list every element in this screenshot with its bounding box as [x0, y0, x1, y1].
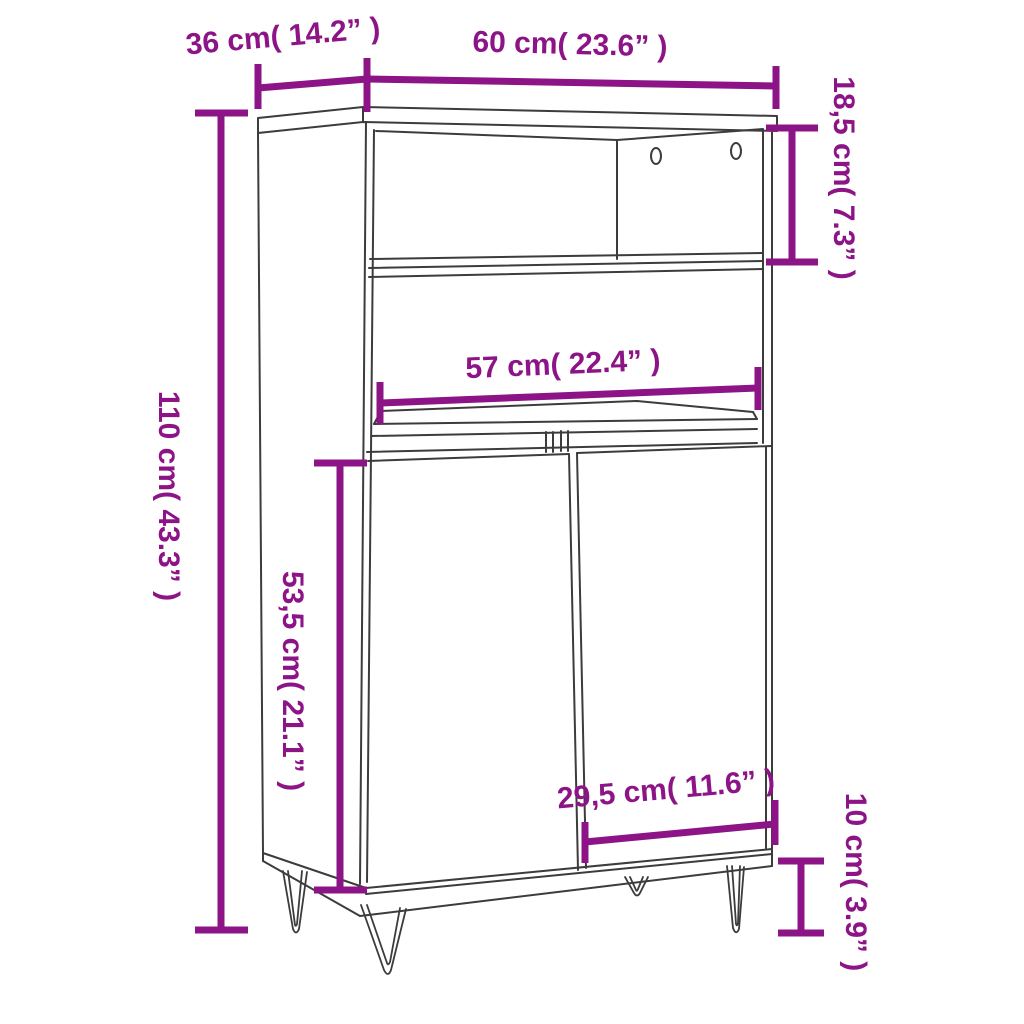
product-dimension-diagram: 36 cm( 14.2” ) 60 cm( 23.6” ) 18,5 cm( 7… [0, 0, 1024, 1024]
dimension-label-leg-height: 10 cm( 3.9” ) [837, 732, 873, 1024]
counter-front-bottom-edge [371, 429, 757, 436]
counter-right-edge [753, 412, 757, 419]
cabinet-line-drawing [258, 107, 777, 974]
frieze-divider [546, 431, 568, 452]
shelf-back-edge [370, 253, 763, 259]
shelf-front-top-edge [369, 261, 763, 268]
left-panel-front-inner-edge [367, 130, 374, 882]
dimension-label-door-section-height: 53,5 cm( 21.1” ) [274, 531, 310, 831]
dimension-label-total-height: 110 cm( 43.3” ) [150, 346, 186, 646]
hanging-hole-right [731, 143, 741, 159]
left-door-top-edge [368, 454, 569, 461]
compartment-ceiling-edge [376, 131, 617, 140]
cabinet-top-board [258, 107, 777, 133]
left-panel-outer-edge [258, 133, 263, 853]
back-rail-top-edge [617, 129, 763, 140]
dim-top-depth-line [258, 58, 367, 112]
door-bottom-edge [366, 849, 772, 888]
shelf-front-bottom-edge [369, 269, 763, 277]
left-panel-front-edge [360, 122, 366, 884]
hairpin-leg-back-right [625, 877, 648, 896]
dim-leg-height-line [778, 861, 824, 933]
dim-total-height-line [195, 113, 248, 930]
dim-door-section-height-line [314, 463, 367, 890]
dimension-label-upper-compartment-height: 18,5 cm( 7.3” ) [825, 28, 861, 328]
hairpin-leg-front-right [727, 866, 744, 932]
counter-front-top-edge [374, 419, 757, 424]
dim-upper-compartment-height-line [766, 128, 818, 262]
dim-top-width-line [367, 66, 776, 109]
hanging-hole-left [651, 148, 661, 164]
